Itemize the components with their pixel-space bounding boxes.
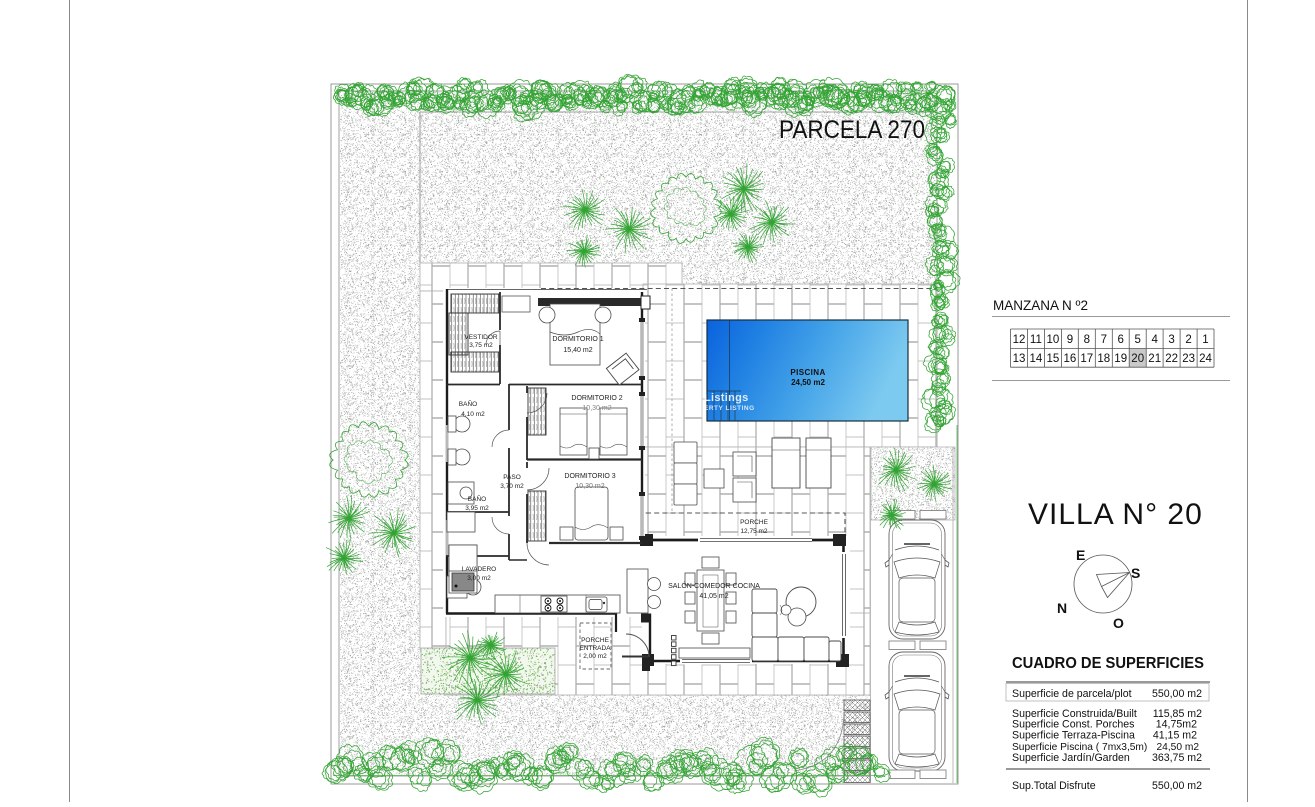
svg-text:15: 15 [1047, 353, 1060, 365]
svg-text:3,00 m2: 3,00 m2 [467, 575, 491, 582]
svg-text:24: 24 [1199, 353, 1212, 365]
svg-text:5: 5 [1134, 334, 1140, 346]
svg-text:PARCELA 270: PARCELA 270 [779, 116, 925, 144]
svg-text:12,75 m2: 12,75 m2 [740, 528, 767, 535]
svg-text:3,95 m2: 3,95 m2 [465, 505, 489, 512]
svg-text:14: 14 [1030, 353, 1043, 365]
svg-text:S: S [1131, 565, 1140, 581]
svg-text:O: O [1113, 615, 1124, 631]
svg-text:DORMITORIO 2: DORMITORIO 2 [571, 395, 622, 402]
svg-text:Superficie Jardín/Garden: Superficie Jardín/Garden [1012, 752, 1130, 764]
svg-text:ERTY LISTING: ERTY LISTING [704, 405, 755, 412]
svg-text:BAÑO: BAÑO [459, 399, 477, 408]
svg-text:19: 19 [1114, 353, 1127, 365]
svg-text:PORCHE: PORCHE [581, 637, 609, 644]
svg-text:DORMITORIO 3: DORMITORIO 3 [564, 473, 615, 480]
svg-text:16: 16 [1064, 353, 1077, 365]
svg-text:Sup.Total Disfrute: Sup.Total Disfrute [1012, 780, 1096, 792]
svg-text:MANZANA N º2: MANZANA N º2 [993, 298, 1088, 313]
svg-text:8: 8 [1084, 334, 1090, 346]
svg-text:SALÓN-COMEDOR COCINA: SALÓN-COMEDOR COCINA [668, 581, 760, 590]
svg-text:363,75 m2: 363,75 m2 [1152, 752, 1202, 764]
svg-text:9: 9 [1067, 334, 1073, 346]
svg-text:24,50 m2: 24,50 m2 [791, 378, 825, 387]
svg-text:20: 20 [1131, 353, 1144, 365]
svg-text:4,10 m2: 4,10 m2 [461, 411, 485, 418]
svg-text:10,30 m2: 10,30 m2 [582, 405, 611, 412]
svg-text:Superficie de parcela/plot: Superficie de parcela/plot [1012, 688, 1132, 700]
svg-text:550,00 m2: 550,00 m2 [1152, 688, 1202, 700]
svg-text:LAVADERO: LAVADERO [462, 566, 496, 573]
svg-text:550,00 m2: 550,00 m2 [1152, 780, 1202, 792]
svg-text:2,00 m2: 2,00 m2 [583, 653, 607, 660]
svg-text:VILLA N° 20: VILLA N° 20 [1028, 498, 1203, 531]
svg-text:11: 11 [1030, 334, 1042, 346]
svg-text:PISCINA: PISCINA [790, 368, 825, 377]
svg-text:DORMITORIO 1: DORMITORIO 1 [552, 336, 603, 343]
svg-text:3,70 m2: 3,70 m2 [500, 483, 524, 490]
svg-text:VESTIDOR: VESTIDOR [464, 334, 498, 341]
svg-text:18: 18 [1097, 353, 1110, 365]
svg-text:BAÑO: BAÑO [468, 494, 486, 503]
svg-text:6: 6 [1117, 334, 1123, 346]
svg-text:N: N [1057, 600, 1067, 616]
svg-text:41,15 m2: 41,15 m2 [1153, 730, 1197, 742]
svg-text:PASO: PASO [503, 474, 521, 481]
svg-text:21: 21 [1148, 353, 1161, 365]
svg-text:ENTRADA: ENTRADA [579, 645, 611, 652]
svg-text:23: 23 [1182, 353, 1195, 365]
svg-text:2: 2 [1185, 334, 1191, 346]
svg-text:7: 7 [1101, 334, 1107, 346]
svg-text:15,40 m2: 15,40 m2 [563, 347, 592, 354]
svg-text:17: 17 [1080, 353, 1093, 365]
svg-text:41,05 m2: 41,05 m2 [699, 593, 728, 600]
svg-text:12: 12 [1013, 334, 1026, 346]
svg-text:PORCHE: PORCHE [740, 519, 768, 526]
svg-text:10: 10 [1047, 334, 1060, 346]
svg-text:Superficie Terraza-Piscina: Superficie Terraza-Piscina [1012, 730, 1135, 742]
svg-text:E: E [1076, 547, 1085, 563]
svg-text:13: 13 [1013, 353, 1026, 365]
svg-text:Listings: Listings [704, 392, 749, 404]
svg-text:3,75 m2: 3,75 m2 [469, 342, 493, 349]
svg-text:3: 3 [1168, 334, 1174, 346]
svg-text:10,30 m2: 10,30 m2 [575, 483, 604, 490]
svg-text:4: 4 [1151, 334, 1158, 346]
svg-text:1: 1 [1202, 334, 1208, 346]
svg-text:CUADRO DE SUPERFICIES: CUADRO DE SUPERFICIES [1012, 655, 1204, 672]
svg-text:22: 22 [1165, 353, 1178, 365]
